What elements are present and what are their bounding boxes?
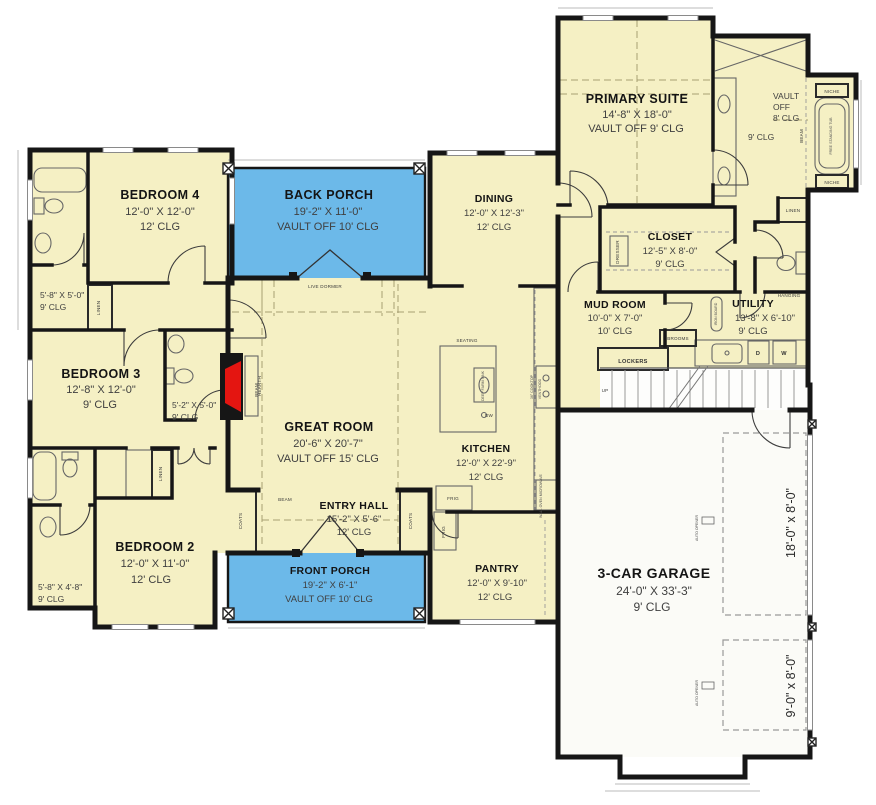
window <box>168 148 198 153</box>
deep-farm-sink-label: DEEP FARM SINK <box>481 370 485 401</box>
window <box>28 360 33 400</box>
room-clg: VAULT OFF 10' CLG <box>285 594 373 605</box>
up-label: UP <box>602 388 609 393</box>
room-clg: 12' CLG <box>478 592 513 603</box>
iron-board-label: IRON BOARD <box>714 302 718 325</box>
room-clg: VAULT OFF 9' CLG <box>588 123 684 135</box>
garage-door-panel-large <box>808 435 813 615</box>
bath-clg: 9' CLG <box>38 594 64 604</box>
window <box>112 625 148 630</box>
bath-dims: 5'-2" X 5'-0" <box>172 400 216 410</box>
live-dormer-label: LIVE DORMER <box>308 284 342 289</box>
cooktop-label: 36" COOKTOP <box>530 374 534 399</box>
niche-label-bottom: NICHE <box>824 180 839 185</box>
floor-plan-canvas: BEDROOM 4 12'-0" X 12'-0" 12' CLG BACK P… <box>0 0 876 800</box>
room-clg: 9' CLG <box>83 399 117 411</box>
free-standing-tub-label: FREE STANDING TUB <box>829 117 833 155</box>
bath-dims: 5'-8" X 4'-8" <box>38 582 82 592</box>
vault-line3: 8' CLG <box>773 113 799 123</box>
lockers-label: LOCKERS <box>618 359 647 365</box>
coats-label-left: COATS <box>238 513 243 529</box>
room-dims: 24'-0" X 33'-3" <box>616 584 692 598</box>
garage-door-dim-small: 9'-0" x 8'-0" <box>784 655 798 718</box>
wall-oven-label: WALL OVEN MICROWAVE <box>539 473 543 517</box>
stairs-floor <box>600 368 808 410</box>
room-dims: 20'-6" X 20'-7" <box>293 438 363 450</box>
room-dims: 12'-0" X 11'-0" <box>121 558 190 570</box>
auto-opener-label-1: AUTO OPENER <box>695 515 699 541</box>
room-dims: 12'-5" X 8'-0" <box>643 246 698 257</box>
post-x-4 <box>414 608 425 619</box>
room-dims: 12'-0" X 12'-0" <box>125 206 195 218</box>
room-dims: 15'-2" X 5'-6" <box>327 514 382 525</box>
room-name: MUD ROOM <box>584 299 646 311</box>
room-clg: VAULT OFF 15' CLG <box>277 453 379 465</box>
room-dims: 19'-2" X 6'-1" <box>303 580 358 591</box>
linen-label-1: LINEN <box>96 301 101 316</box>
room-name: BACK PORCH <box>285 188 374 202</box>
room-dims: 19'-2" X 11'-0" <box>294 206 363 218</box>
room-dims: 12'-8" X 12'-0" <box>66 384 136 396</box>
room-name: ENTRY HALL <box>320 500 389 512</box>
post-x-6 <box>808 623 816 631</box>
garage-door-panel-small <box>808 640 813 730</box>
beam-label-entry: BEAM <box>278 497 292 502</box>
floor-plan-page: BEDROOM 4 12'-0" X 12'-0" 12' CLG BACK P… <box>0 0 876 800</box>
post-x-7 <box>808 738 816 746</box>
hanging-label: HANGING <box>778 293 801 298</box>
room-name: GREAT ROOM <box>284 420 373 434</box>
room-name: PANTRY <box>475 563 519 575</box>
dryer-label: D <box>756 351 760 357</box>
washer-label: W <box>781 351 787 357</box>
room-clg: 12' CLG <box>337 527 372 538</box>
beam-label-tub: BEAM <box>799 129 804 143</box>
frig-label-pantry: FRIG <box>441 526 446 538</box>
post-x-1 <box>223 163 234 174</box>
fireplace <box>220 353 243 420</box>
room-name: UTILITY <box>732 298 774 310</box>
linen-label-2: LINEN <box>158 467 163 482</box>
room-name: KITCHEN <box>462 443 511 455</box>
room-clg: 9' CLG <box>738 326 767 337</box>
room-name: BEDROOM 2 <box>115 540 194 554</box>
room-name: CLOSET <box>648 231 693 243</box>
vault-line1: VAULT <box>773 91 799 101</box>
room-dims: 12'-0" X 12'-3" <box>464 208 524 219</box>
room-name: 3-CAR GARAGE <box>598 565 711 581</box>
auto-opener-label-2: AUTO OPENER <box>695 680 699 706</box>
frig-label-kitchen: FRIG <box>447 496 459 501</box>
floor-fills <box>30 18 856 757</box>
window <box>460 620 535 625</box>
window <box>583 16 613 21</box>
post-x-5 <box>808 420 816 428</box>
room-clg: 12' CLG <box>477 222 512 233</box>
room-name: BEDROOM 4 <box>120 188 199 202</box>
room-name: DINING <box>475 193 514 205</box>
seating-label: SEATING <box>456 338 477 343</box>
niche-label-top: NICHE <box>824 89 839 94</box>
window <box>505 151 535 156</box>
window <box>668 16 698 21</box>
brooms-label: BROOMS <box>667 336 689 341</box>
window <box>158 625 194 630</box>
garage-door-dim-large: 18'-0" x 8'-0" <box>784 488 798 558</box>
room-name: BEDROOM 3 <box>61 367 140 381</box>
bath-dims: 5'-8" X 5'-0" <box>40 290 84 300</box>
dresser-label: DRESSER <box>615 240 620 264</box>
hearth-label: HEARTH <box>257 376 262 396</box>
post-x-3 <box>223 608 234 619</box>
room-name: FRONT PORCH <box>290 565 370 577</box>
room-clg: VAULT OFF 10' CLG <box>277 221 379 233</box>
dw-label: DW <box>485 413 494 418</box>
bath-clg: 9' CLG <box>40 302 66 312</box>
room-dims: 12'-0" X 9'-10" <box>467 578 527 589</box>
room-clg: 9' CLG <box>655 259 684 270</box>
window <box>230 178 235 224</box>
venthood-label: VENTHOOD <box>538 378 542 399</box>
vault-line2: OFF <box>773 102 790 112</box>
window <box>28 458 33 498</box>
room-name: PRIMARY SUITE <box>586 92 688 106</box>
bath-clg: 9' CLG <box>172 412 198 422</box>
linen-label-3: LINEN <box>786 208 801 213</box>
room-clg: 12' CLG <box>469 472 504 483</box>
coats-label-right: COATS <box>408 513 413 529</box>
window <box>28 180 33 220</box>
room-dims: 14'-8" X 18'-0" <box>602 109 672 121</box>
room-dims: 12'-0" X 22'-9" <box>456 458 516 469</box>
bath-clg: 9' CLG <box>748 132 774 142</box>
room-dims: 13'-8" X 6'-10" <box>735 313 795 324</box>
window <box>103 148 133 153</box>
window <box>854 100 859 168</box>
post-x-2 <box>414 163 425 174</box>
room-clg: 9' CLG <box>634 600 671 614</box>
room-clg: 12' CLG <box>140 221 180 233</box>
window <box>447 151 477 156</box>
room-clg: 12' CLG <box>131 574 171 586</box>
room-clg: 10' CLG <box>598 326 633 337</box>
room-dims: 10'-0" X 7'-0" <box>588 313 643 324</box>
